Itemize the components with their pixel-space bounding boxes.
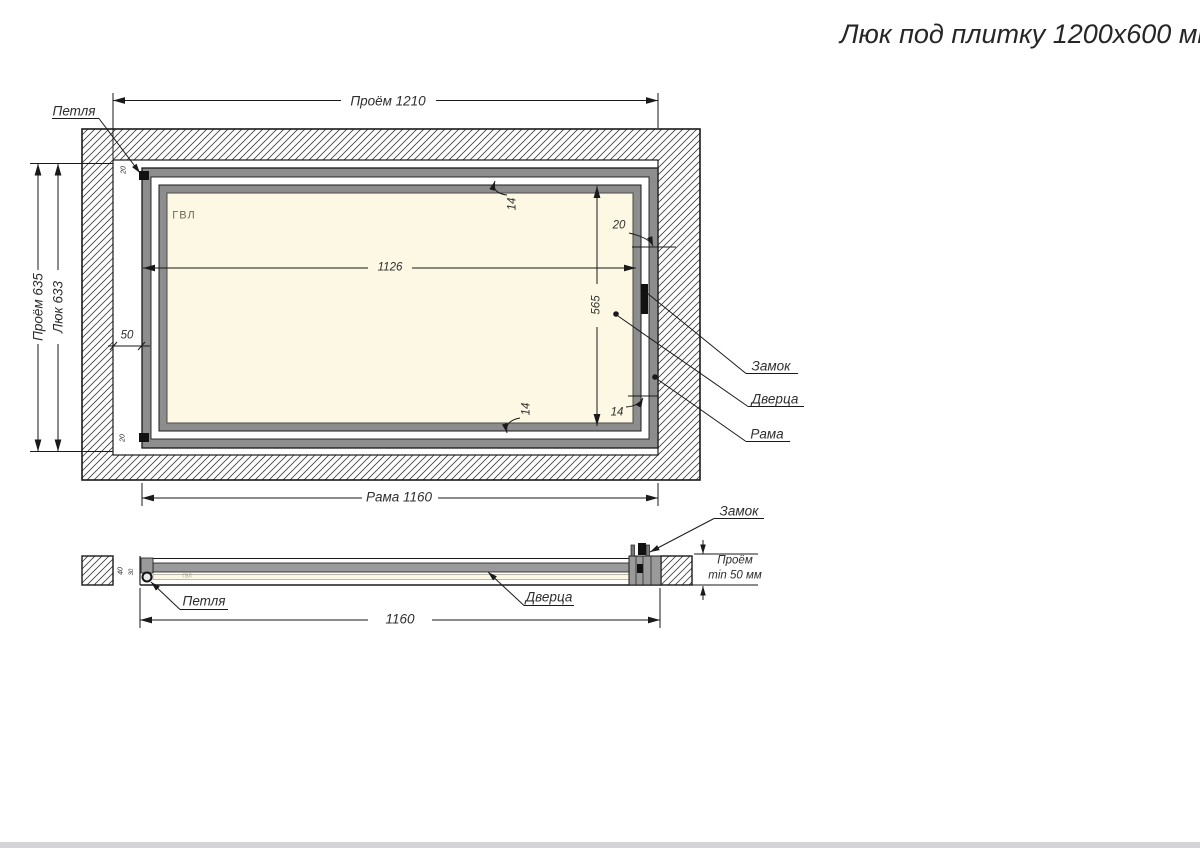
- dim-gap-bottom: 14: [521, 403, 533, 416]
- callout-door-section: Дверца: [526, 590, 573, 604]
- dim-niche-word: Проём: [717, 555, 752, 567]
- dim-gap-bottom-right: 14: [611, 407, 624, 419]
- frame-leader-dot: [652, 374, 658, 380]
- callout-frame-front: Рама: [750, 427, 783, 441]
- hinge-mark-top-icon: [139, 171, 149, 180]
- gvl-section-bar: [153, 575, 648, 580]
- dim-section-frame-width: 1160: [382, 612, 417, 626]
- wall-section-right: [661, 556, 692, 585]
- lock-mark-icon: [641, 284, 648, 314]
- dim-gap-left: 50: [121, 330, 134, 342]
- front-view-drawing: [82, 129, 700, 480]
- dim-hinge-offset-top: 20: [121, 166, 128, 174]
- hinge-block-section: [141, 558, 153, 573]
- callout-lock-front: Замок: [752, 359, 791, 373]
- dim-hatch-height: Люк 633: [51, 278, 65, 336]
- lock-block-section: [629, 556, 661, 585]
- dim-inner-width: 1126: [378, 262, 403, 274]
- dim-frame-width: Рама 1160: [363, 490, 435, 504]
- gvl-panel-front: [167, 193, 633, 423]
- callout-lock-section: Замок: [720, 504, 759, 518]
- dim-door-depth: 30: [129, 569, 135, 576]
- panel-material-label-section: ГВЛ: [182, 575, 191, 580]
- hinge-mark-bottom-icon: [139, 433, 149, 442]
- drawing-canvas: [0, 0, 1200, 851]
- lock-post-left: [631, 545, 635, 556]
- dim-niche-min: min 50 мм: [708, 570, 761, 582]
- dim-opening-width: Проём 1210: [347, 94, 428, 108]
- callout-hinge-section: Петля: [183, 594, 226, 608]
- dim-frame-depth: 40: [118, 567, 125, 575]
- dim-opening-height: Проём 635: [31, 270, 45, 344]
- dim-inner-height: 565: [591, 295, 603, 314]
- door-section-bar: [153, 563, 648, 572]
- lock-pin-section: [637, 564, 643, 573]
- door-leader-dot: [613, 311, 619, 317]
- drawing-sheet: Люк под плитку 1200х600 мм Петля Проём 1…: [0, 0, 1200, 851]
- lock-knob-section-icon: [638, 543, 646, 555]
- section-view-drawing: [82, 543, 692, 585]
- footer-separator: [0, 842, 1200, 848]
- drawing-title: Люк под плитку 1200х600 мм: [840, 18, 1200, 50]
- callout-door-front: Дверца: [752, 392, 799, 406]
- dim-gap-right: 20: [613, 220, 626, 232]
- hinge-pin-section-icon: [143, 573, 152, 582]
- lock-post-right: [646, 545, 650, 556]
- dim-hinge-offset-bottom: 20: [120, 434, 127, 442]
- panel-material-label: ГВЛ: [172, 211, 195, 222]
- dim-gap-top: 14: [507, 198, 519, 211]
- wall-section-left: [82, 556, 113, 585]
- callout-hinge-front: Петля: [53, 104, 96, 118]
